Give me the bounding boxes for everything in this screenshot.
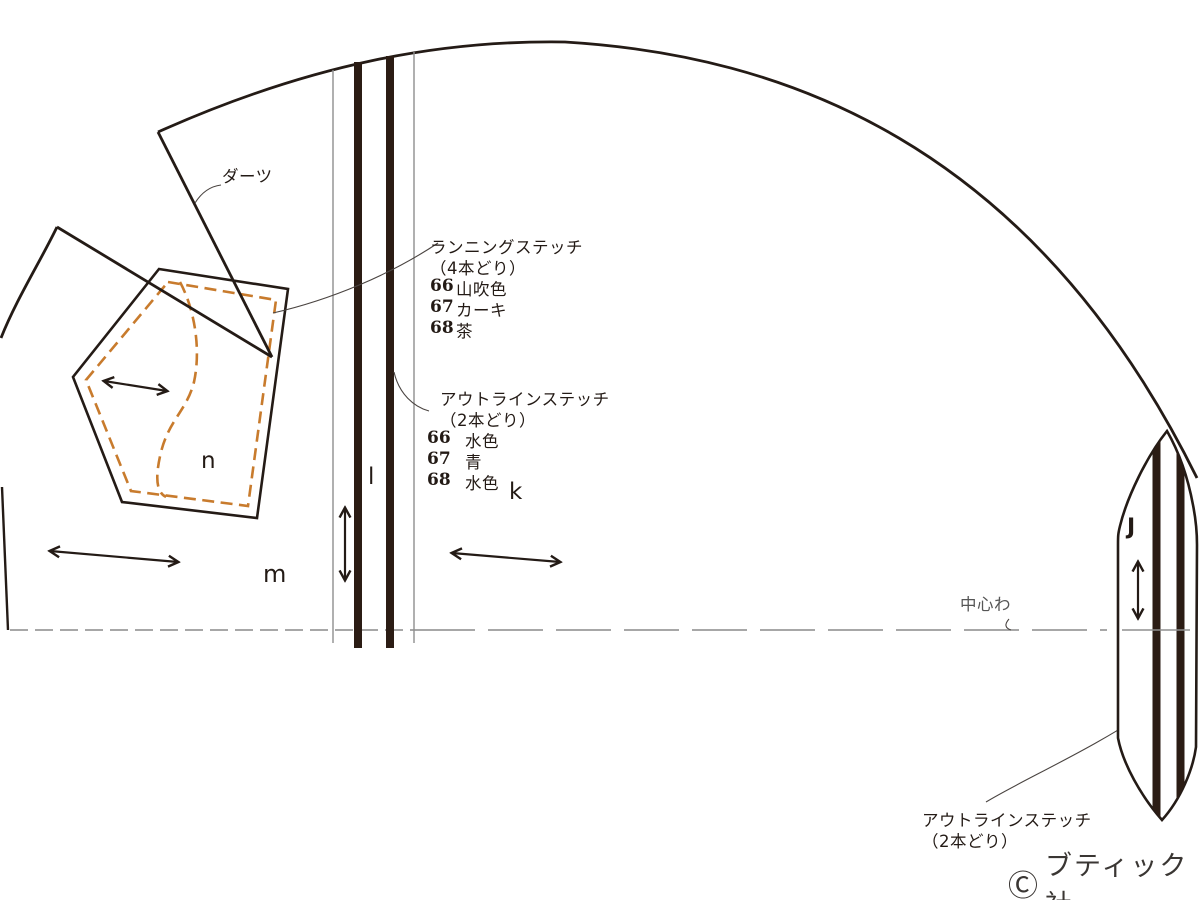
grain-arrow-m — [50, 551, 178, 562]
piece-label-n: n — [201, 450, 216, 473]
pattern-sheet: ダーツ ランニングステッチ （4本どり） 66 山吹色 67 カーキ 68 茶 … — [0, 0, 1200, 900]
thread-number: 66 — [427, 428, 451, 448]
piece-j — [1118, 431, 1197, 822]
leader-lines — [195, 185, 1154, 802]
copyright-symbol: Ⓒ — [1008, 861, 1038, 900]
outline-stitch-bottom-label: アウトラインステッチ （2本どり） — [922, 807, 1092, 849]
thread-number: 67 — [430, 297, 454, 317]
running-stitch-legend: ランニングステッチ （4本どり） 66 山吹色 67 カーキ 68 茶 — [430, 234, 583, 339]
center-fold-tick — [1006, 619, 1011, 630]
thread-number: 68 — [430, 318, 454, 338]
grain-arrow-k — [452, 553, 560, 562]
piece-label-k: k — [509, 481, 522, 504]
legend-item: 66 山吹色 — [430, 276, 583, 297]
piece-label-j: J — [1127, 517, 1135, 539]
dart-leader — [195, 185, 221, 203]
legend-item: 68 茶 — [430, 318, 583, 339]
legend-item: 66 水色 — [427, 428, 610, 449]
outline-stitch-legend: アウトラインステッチ （2本どり） 66 水色 67 青 68 水色 — [427, 386, 610, 491]
piece-label-l: l — [368, 466, 374, 489]
thread-color: 茶 — [456, 318, 473, 342]
outline-stitch-leader — [394, 372, 429, 411]
thread-number: 68 — [427, 470, 451, 490]
copyright-name: ブティック社 — [1045, 844, 1200, 900]
thread-number: 66 — [430, 276, 454, 296]
hem-arc — [158, 42, 1197, 478]
thread-number: 67 — [427, 449, 451, 469]
piece-m-outline — [1, 227, 57, 630]
copyright: Ⓒ ブティック社 — [1008, 844, 1200, 900]
center-fold-label: 中心わ — [960, 597, 1011, 614]
thread-color: 水色 — [465, 470, 499, 494]
dart-label: ダーツ — [222, 169, 273, 186]
legend-item: 67 カーキ — [430, 297, 583, 318]
outline-stitch-bottom-strands: （2本どり） — [922, 828, 1018, 852]
piece-n-outline — [73, 269, 288, 518]
legend-item: 67 青 — [427, 449, 610, 470]
piece-label-m: m — [263, 562, 286, 586]
stitch-bars-l — [354, 56, 394, 648]
